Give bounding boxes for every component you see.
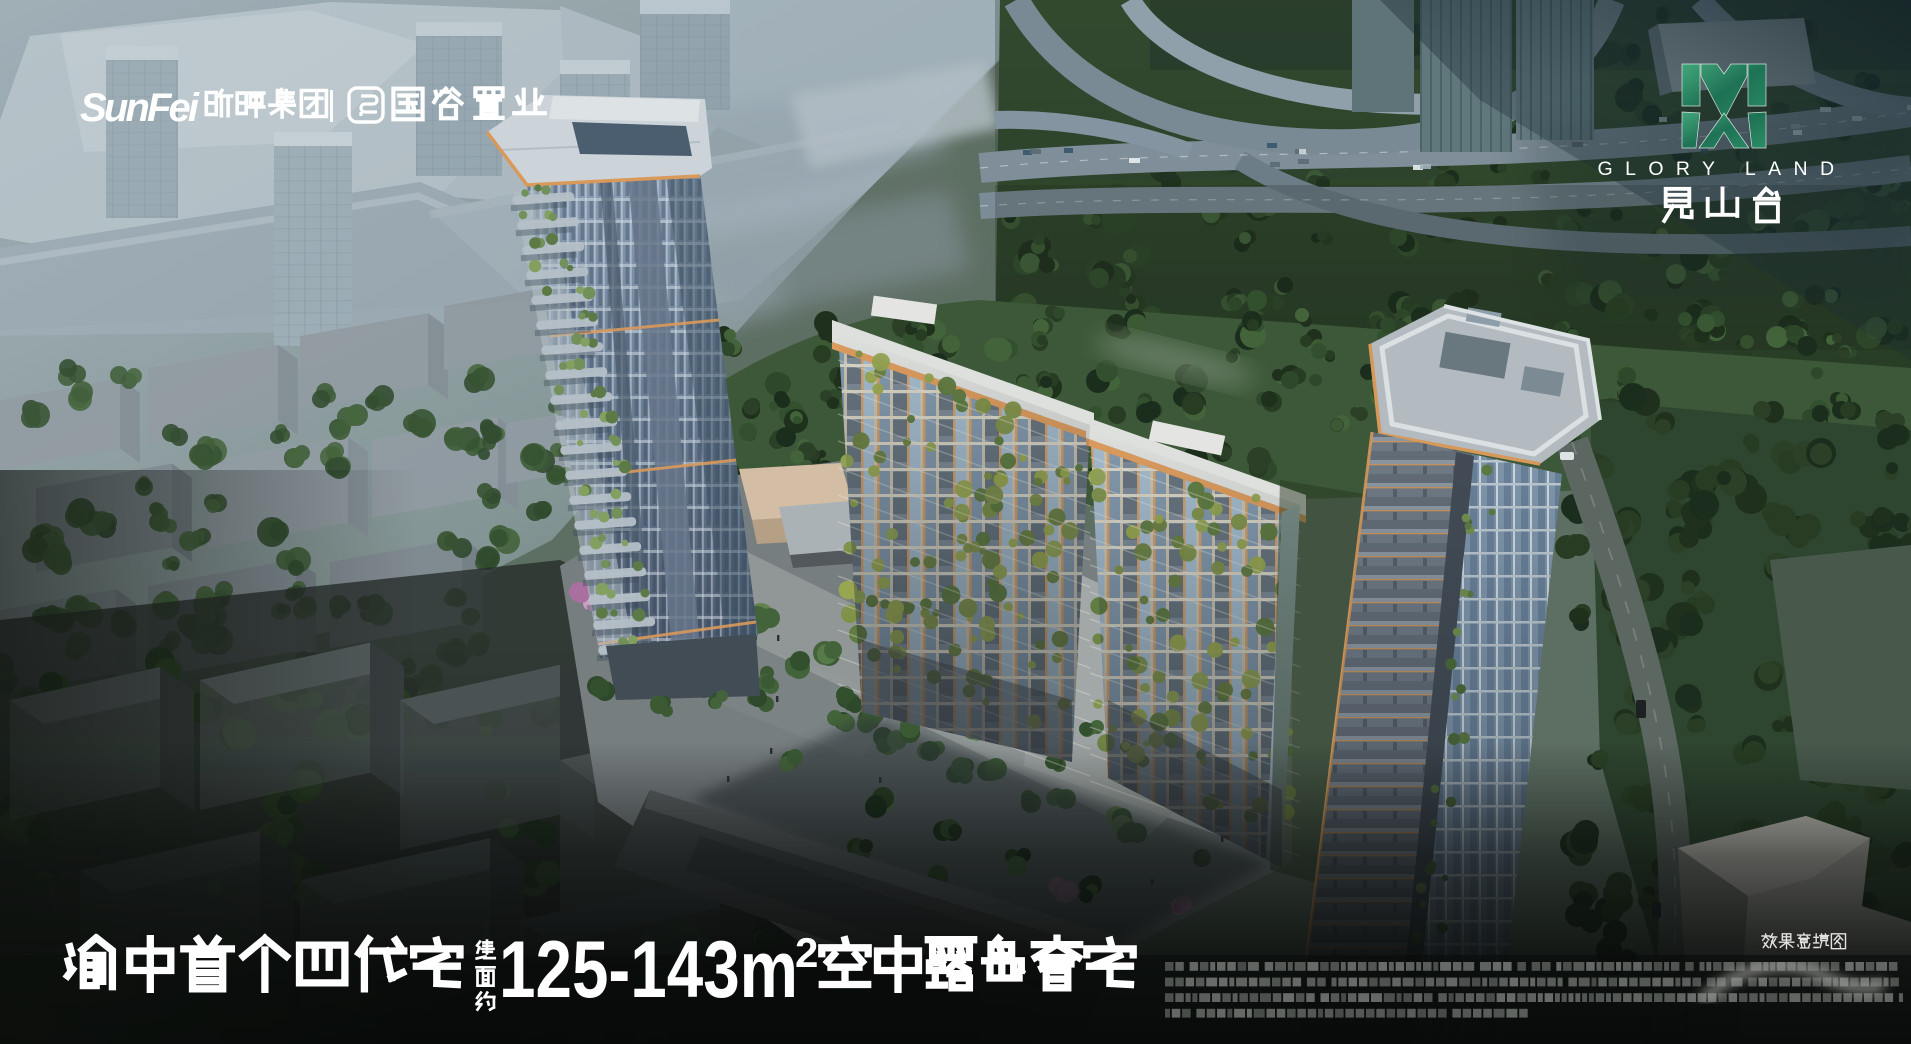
svg-text:125-143m: 125-143m [499,925,798,1015]
svg-text:SunFei: SunFei [80,86,200,130]
svg-text:GLORY LAND: GLORY LAND [1598,158,1847,180]
svg-text:2: 2 [795,929,818,976]
